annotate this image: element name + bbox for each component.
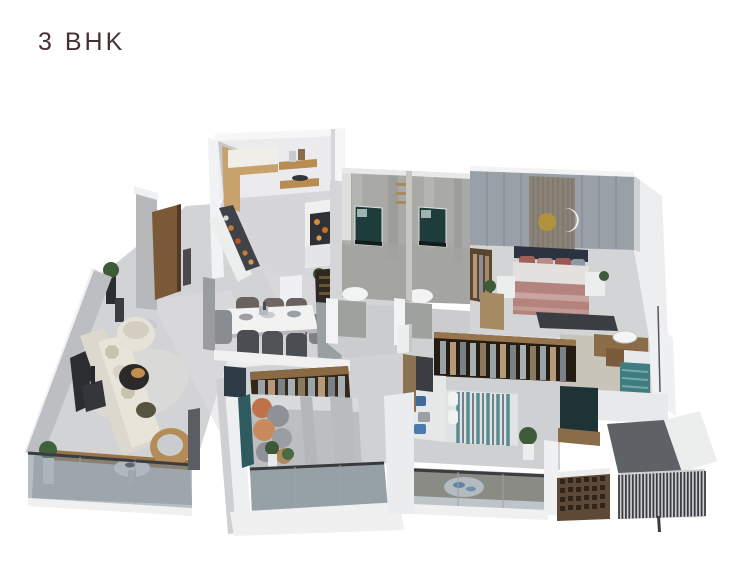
svg-text:3 BHK: 3 BHK <box>38 28 125 56</box>
